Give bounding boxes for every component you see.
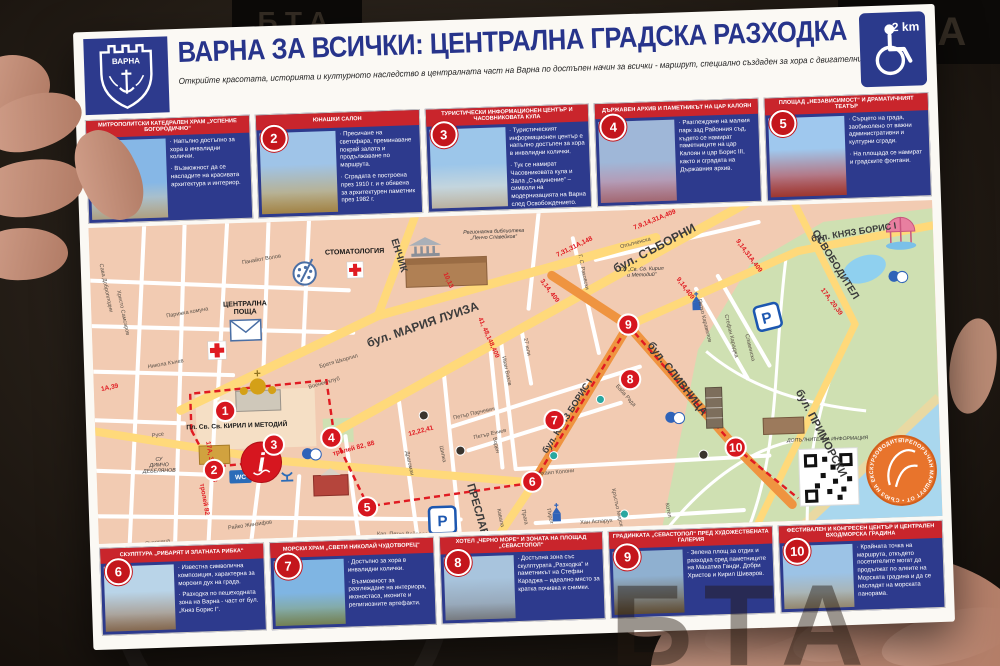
poi-card-7: МОРСКИ ХРАМ „СВЕТИ НИКОЛАЙ ЧУДОТВОРЕЦ“ 7… [269,537,437,630]
poi-description: · Разглеждане на малкия парк зад Районни… [675,114,762,204]
poi-photo: 4 [599,120,678,203]
svg-text:2: 2 [210,463,217,477]
poi-number-badge: 3 [430,121,458,149]
poi-bullet [519,595,601,598]
poi-bullet: · Достъпно за хора в инвалидни колички. [347,556,429,574]
poi-card-3: ТУРИСТИЧЕСКИ ИНФОРМАЦИОНЕН ЦЕНТЪР И ЧАСО… [424,103,592,212]
poi-photo: 5 [768,116,847,198]
poi-description: · Известна символична композиция, характ… [174,558,266,632]
distance-badge: 2 km [859,11,927,87]
svg-text:7: 7 [551,413,558,427]
poi-bullet: · Пресичане на светофара, преминаване по… [339,128,416,169]
varna-logo-text: ВАРНА [112,56,141,66]
poi-photo: 7 [273,559,345,626]
map-marker-8: 8 [620,369,641,390]
map-label-wc: WC [235,474,246,481]
poi-bullet: · Разглеждане на малкия парк зад Районни… [679,117,757,174]
map-poster: ВАРНА ВАРНА ЗА ВСИЧКИ: ЦЕНТРАЛНА ГРАДСКА… [73,4,955,650]
poi-bullet: · Сърцето на града, заобиколено от важни… [848,113,925,147]
poi-description: · Напълно достъпно за хора в инвалидни к… [165,133,252,221]
poi-number-badge: 4 [599,113,627,141]
svg-text:1: 1 [222,404,229,418]
poi-description: · Достъпно за хора в инвалидни колички. … [343,553,435,627]
poi-bullet: · Разходка по пешеходната зона на Варна … [179,589,262,615]
poi-card-5: ПЛОЩАД „НЕЗАВИСИМОСТ“ И ДРАМАТИЧНИЯТ ТЕА… [764,92,932,201]
poi-photo: 6 [104,564,176,631]
map-marker-9: 9 [618,314,639,335]
poi-description: · Туристическият информационен център е … [505,121,592,209]
svg-text:6: 6 [529,475,536,489]
poi-card-2: ЮНАШКИ САЛОН 2 · Пресичане на светофара,… [255,109,423,218]
poi-photo: 8 [443,555,515,620]
poi-number-badge: 8 [444,548,472,576]
aquarium-building [763,417,804,435]
poi-card-6: СКУЛПТУРА „РИБАРЯТ И ЗЛАТНАТА РИБКА“ 6 ·… [99,542,267,635]
varna-coat-of-arms: ВАРНА [83,36,169,115]
map-marker-7: 7 [544,410,565,431]
poi-bullet: · Възможност да се насладите на красиват… [170,163,247,189]
city-map-svg: ПРЕПОРЪЧАН МАРШРУТ ОТ • СЪЮЗ НА ЕКСКУРЗО… [88,200,942,544]
poi-bullet: · Напълно достъпно за хора в инвалидни к… [170,136,247,162]
map-marker-4: 4 [321,427,342,448]
varna-shield-icon: ВАРНА [94,41,158,111]
map-label-pmark: P [437,513,448,530]
poi-number-badge: 7 [274,552,302,580]
map-marker-5: 5 [357,497,378,518]
map-label-place2: Регионална библиотека„Пенчо Славейков“ [463,228,524,242]
poi-number-badge: 2 [260,124,288,152]
map-marker-1: 1 [215,400,236,421]
medical-cross-icon [347,261,364,278]
map-marker-6: 6 [522,471,543,492]
distance-label: 2 km [892,19,920,34]
poi-bullet: · Сградата е построена през 1910 г. и е … [341,171,418,205]
poi-bullet: · Тук се намират Часовниковата кула и За… [510,160,587,209]
medical-cross-icon [208,341,227,360]
poi-bullet: · Туристическият информационен център е … [509,124,586,158]
poi-description: · Достъпна зона със скулптурата „Разходк… [513,549,605,621]
poi-card-8: ХОТЕЛ „ЧЕРНО МОРЕ“ И ЗОНАТА НА ПЛОЩАД „С… [439,531,607,624]
post-office-icon [230,320,261,341]
poi-photo: 3 [429,127,508,209]
map-marker-2: 2 [204,459,225,480]
photo-scene: БТА БТА БТА ВАРНА ВАРНА ЗА ВСИЧКИ: ЦЕНТР… [0,0,1000,666]
svg-text:9: 9 [625,317,632,331]
poi-description: · Сърцето на града, заобиколено от важни… [844,110,931,198]
svg-text:10: 10 [729,440,743,454]
bta-watermark-text: БТА [610,560,878,666]
map-marker-3: 3 [263,434,284,455]
poi-description: · Пресичане на светофара, преминаване по… [335,125,422,215]
map-marker-10: 10 [725,437,746,458]
poi-bullet: · Възможност за разглеждане на интериора… [348,576,431,610]
poi-number-badge: 5 [769,109,797,137]
svg-text:5: 5 [363,500,370,514]
poi-photo: 2 [259,131,338,214]
poi-number-badge: 6 [104,558,132,586]
poi-bullet: · Достъпна зона със скулптурата „Разходк… [517,552,600,594]
svg-text:8: 8 [627,372,634,386]
poi-bullet: · На площада се намират и градските фонт… [850,148,926,166]
poi-bullet: · Известна символична композиция, характ… [178,562,261,588]
poi-card-4: ДЪРЖАВЕН АРХИВ И ПАМЕТНИКЪТ НА ЦАР КАЛОЯ… [594,98,762,207]
poi-bullet [681,175,757,178]
svg-text:4: 4 [328,431,335,445]
svg-text:3: 3 [270,438,277,452]
city-map: ПРЕПОРЪЧАН МАРШРУТ ОТ • СЪЮЗ НА ЕКСКУРЗО… [88,200,942,544]
